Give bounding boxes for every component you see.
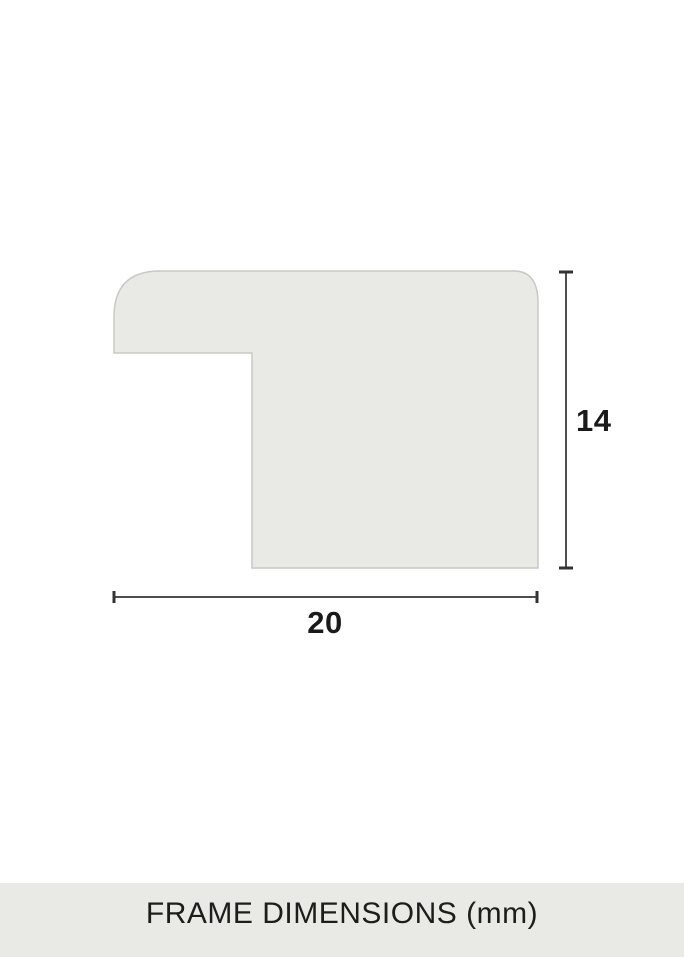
footer-caption: FRAME DIMENSIONS (mm) [146,898,538,930]
frame-dimensions-screenshot: 14 20 FRAME DIMENSIONS (mm) [0,0,684,957]
frame-profile-diagram: 14 20 [0,0,684,883]
width-dimension-value: 20 [307,605,342,640]
width-dimension-line [114,591,537,603]
height-dimension-line [559,272,573,568]
height-dimension-value: 14 [576,403,612,438]
footer-bar: FRAME DIMENSIONS (mm) [0,883,684,957]
frame-profile-shape [114,271,538,568]
